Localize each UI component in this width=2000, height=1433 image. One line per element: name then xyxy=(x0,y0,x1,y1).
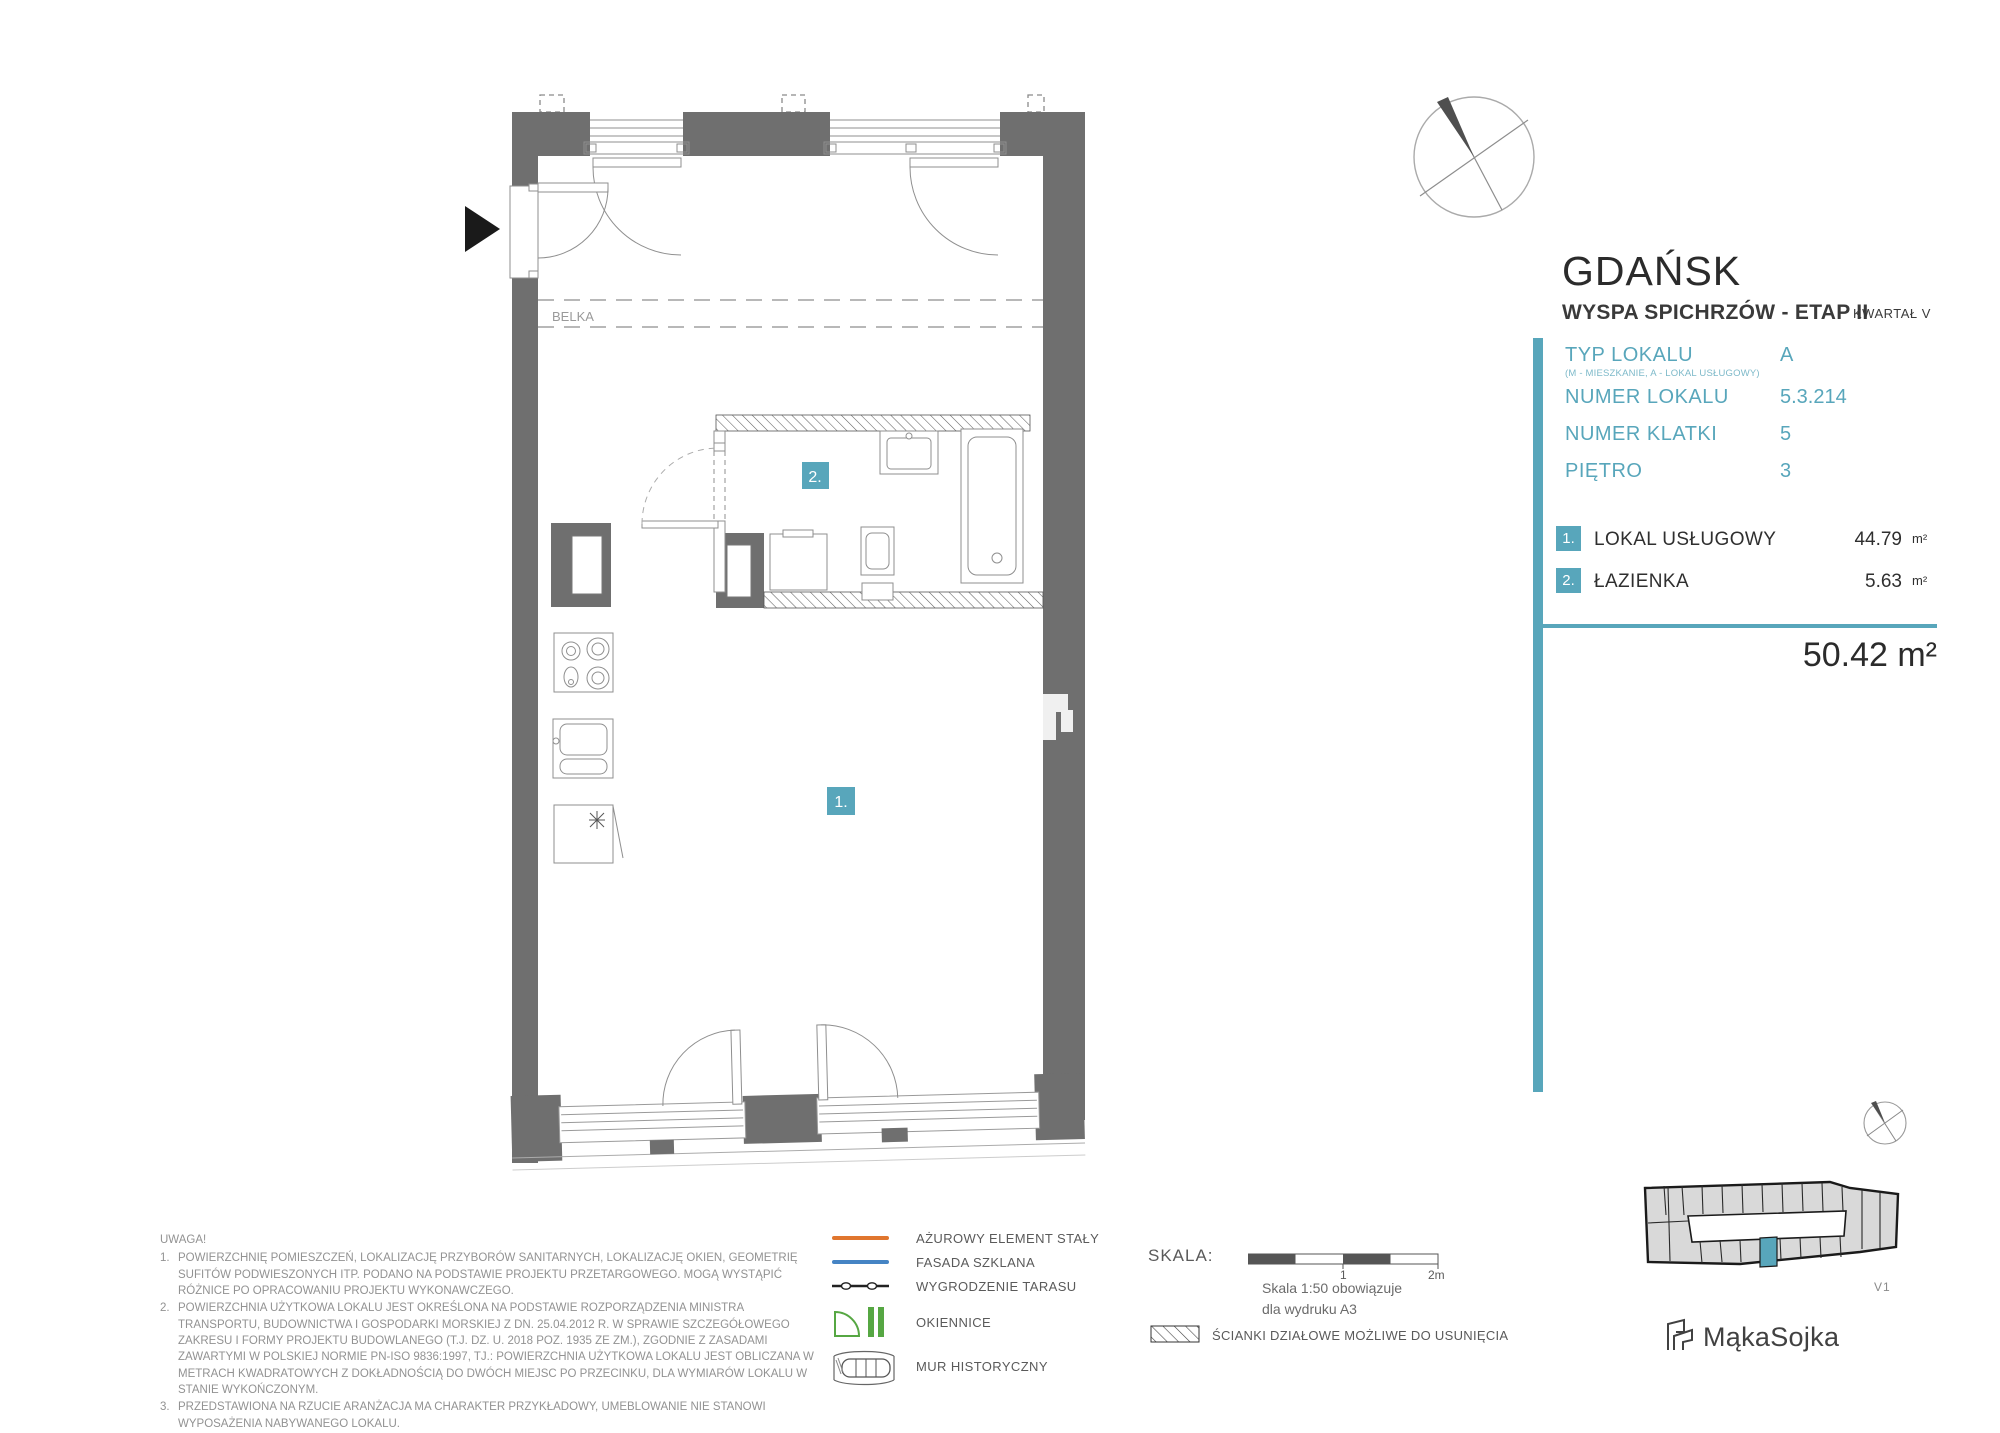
legend-shutters-icon xyxy=(832,1305,889,1339)
beam-label: BELKA xyxy=(552,309,594,324)
bathroom-sink xyxy=(880,431,938,474)
entrance-arrow xyxy=(465,206,500,252)
room-row-unit: m² xyxy=(1912,573,1927,588)
legend-label: FASADA SZKLANA xyxy=(916,1255,1035,1270)
room-row-badge: 1. xyxy=(1556,526,1581,551)
note-item: POWIERZCHNIĘ POMIESZCZEŃ, LOKALIZACJĘ PR… xyxy=(178,1250,815,1299)
room-row-2: 2. ŁAZIENKA 5.63 m² xyxy=(1556,568,1940,610)
total-area: 50.42 m² xyxy=(1533,636,1937,675)
info-label-numer-lokalu: NUMER LOKALU xyxy=(1565,386,1940,409)
legend-label: AŻUROWY ELEMENT STAŁY xyxy=(916,1231,1099,1246)
quarter-label: KWARTAŁ V xyxy=(1853,306,1931,321)
info-label-typ-lokalu: TYP LOKALU xyxy=(1565,344,1940,367)
room-row-1: 1. LOKAL USŁUGOWY 44.79 m² xyxy=(1556,526,1940,568)
shaft-left xyxy=(551,523,611,607)
legend-terrace-line xyxy=(832,1279,889,1293)
legend: AŻUROWY ELEMENT STAŁY FASADA SZKLANA WYG… xyxy=(832,1226,1132,1388)
room-row-name: ŁAZIENKA xyxy=(1594,571,1689,593)
room-row-name: LOKAL USŁUGOWY xyxy=(1594,529,1776,551)
small-compass-icon xyxy=(1860,1098,1910,1148)
info-value-pietro: 3 xyxy=(1780,460,1791,483)
info-label-numer-klatki: NUMER KLATKI xyxy=(1565,423,1940,446)
historic-south-wall xyxy=(509,1018,1085,1170)
note-item: PRZEDSTAWIONA NA RZUCIE ARANŻACJA MA CHA… xyxy=(178,1399,815,1432)
page-title-city: GDAŃSK xyxy=(1562,248,1741,295)
kitchen-sink xyxy=(553,719,613,778)
room-1-badge: 1. xyxy=(827,787,855,815)
scale-label: SKALA: xyxy=(1148,1246,1214,1266)
info-value-numer-klatki: 5 xyxy=(1780,423,1791,446)
partition-hatch-swatch xyxy=(1150,1325,1200,1343)
room-row-area: 5.63 xyxy=(1818,571,1902,593)
bathroom-door xyxy=(642,431,725,592)
room-2-badge: 2. xyxy=(802,462,829,489)
washing-machine xyxy=(770,530,827,590)
key-plan-version: V1 xyxy=(1874,1280,1891,1294)
legend-label: OKIENNICE xyxy=(916,1315,991,1330)
legend-label: MUR HISTORYCZNY xyxy=(916,1359,1048,1374)
room-row-area: 44.79 xyxy=(1818,529,1902,551)
wall-stubs xyxy=(540,95,1044,112)
beam: BELKA xyxy=(538,300,1043,327)
notes-block: UWAGA! POWIERZCHNIĘ POMIESZCZEŃ, LOKALIZ… xyxy=(160,1232,815,1433)
makasojka-logo-text: MąkaSojka xyxy=(1703,1322,1839,1353)
info-sub-typ-lokalu: (M - MIESZKANIE, A - LOKAL USŁUGOWY) xyxy=(1565,368,1940,379)
scale-note: Skala 1:50 obowiązuje dla wydruku A3 xyxy=(1262,1278,1402,1320)
kitchen-cabinet xyxy=(554,805,623,863)
kitchen-stove xyxy=(554,633,613,692)
svg-text:1.: 1. xyxy=(834,794,847,811)
info-value-typ-lokalu: A xyxy=(1780,344,1793,367)
room-list: 1. LOKAL USŁUGOWY 44.79 m² 2. ŁAZIENKA 5… xyxy=(1556,526,1940,610)
legend-label: WYGRODZENIE TARASU xyxy=(916,1279,1077,1294)
toilet xyxy=(861,527,894,600)
project-name: WYSPA SPICHRZÓW - ETAP II xyxy=(1562,301,1869,325)
makasojka-logo-icon xyxy=(1664,1316,1702,1354)
legend-orange-line xyxy=(832,1236,889,1240)
building-key-plan xyxy=(1630,1175,1920,1275)
info-value-numer-lokalu: 5.3.214 xyxy=(1780,386,1847,409)
legend-historic-wall-icon xyxy=(832,1344,896,1388)
key-plan-highlighted-unit xyxy=(1760,1237,1777,1267)
north-compass-icon xyxy=(1406,88,1546,228)
partition-walls-label: ŚCIANKI DZIAŁOWE MOŻLIWE DO USUNIĘCIA xyxy=(1212,1328,1508,1343)
svg-text:2.: 2. xyxy=(808,469,821,486)
south-door-2 xyxy=(817,1023,898,1100)
bathtub xyxy=(961,429,1023,583)
unit-info: TYP LOKALU (M - MIESZKANIE, A - LOKAL US… xyxy=(1565,344,1940,497)
floor-plan: BELKA xyxy=(440,60,1120,1200)
total-divider xyxy=(1533,624,1937,628)
floor-plan-sheet: { "header": { "city": "GDAŃSK", "project… xyxy=(0,0,2000,1413)
accent-bar xyxy=(1533,338,1543,1092)
scale-tick-2m: 2m xyxy=(1428,1268,1445,1282)
legend-blue-line xyxy=(832,1260,889,1264)
window-north-2 xyxy=(824,120,1006,255)
notes-title: UWAGA! xyxy=(160,1232,815,1248)
room-row-badge: 2. xyxy=(1556,568,1581,593)
south-door-1 xyxy=(661,1030,742,1106)
note-item: POWIERZCHNIA UŻYTKOWA LOKALU JEST OKREŚL… xyxy=(178,1300,815,1398)
entrance-door xyxy=(510,183,608,278)
room-row-unit: m² xyxy=(1912,531,1927,546)
info-label-pietro: PIĘTRO xyxy=(1565,460,1940,483)
